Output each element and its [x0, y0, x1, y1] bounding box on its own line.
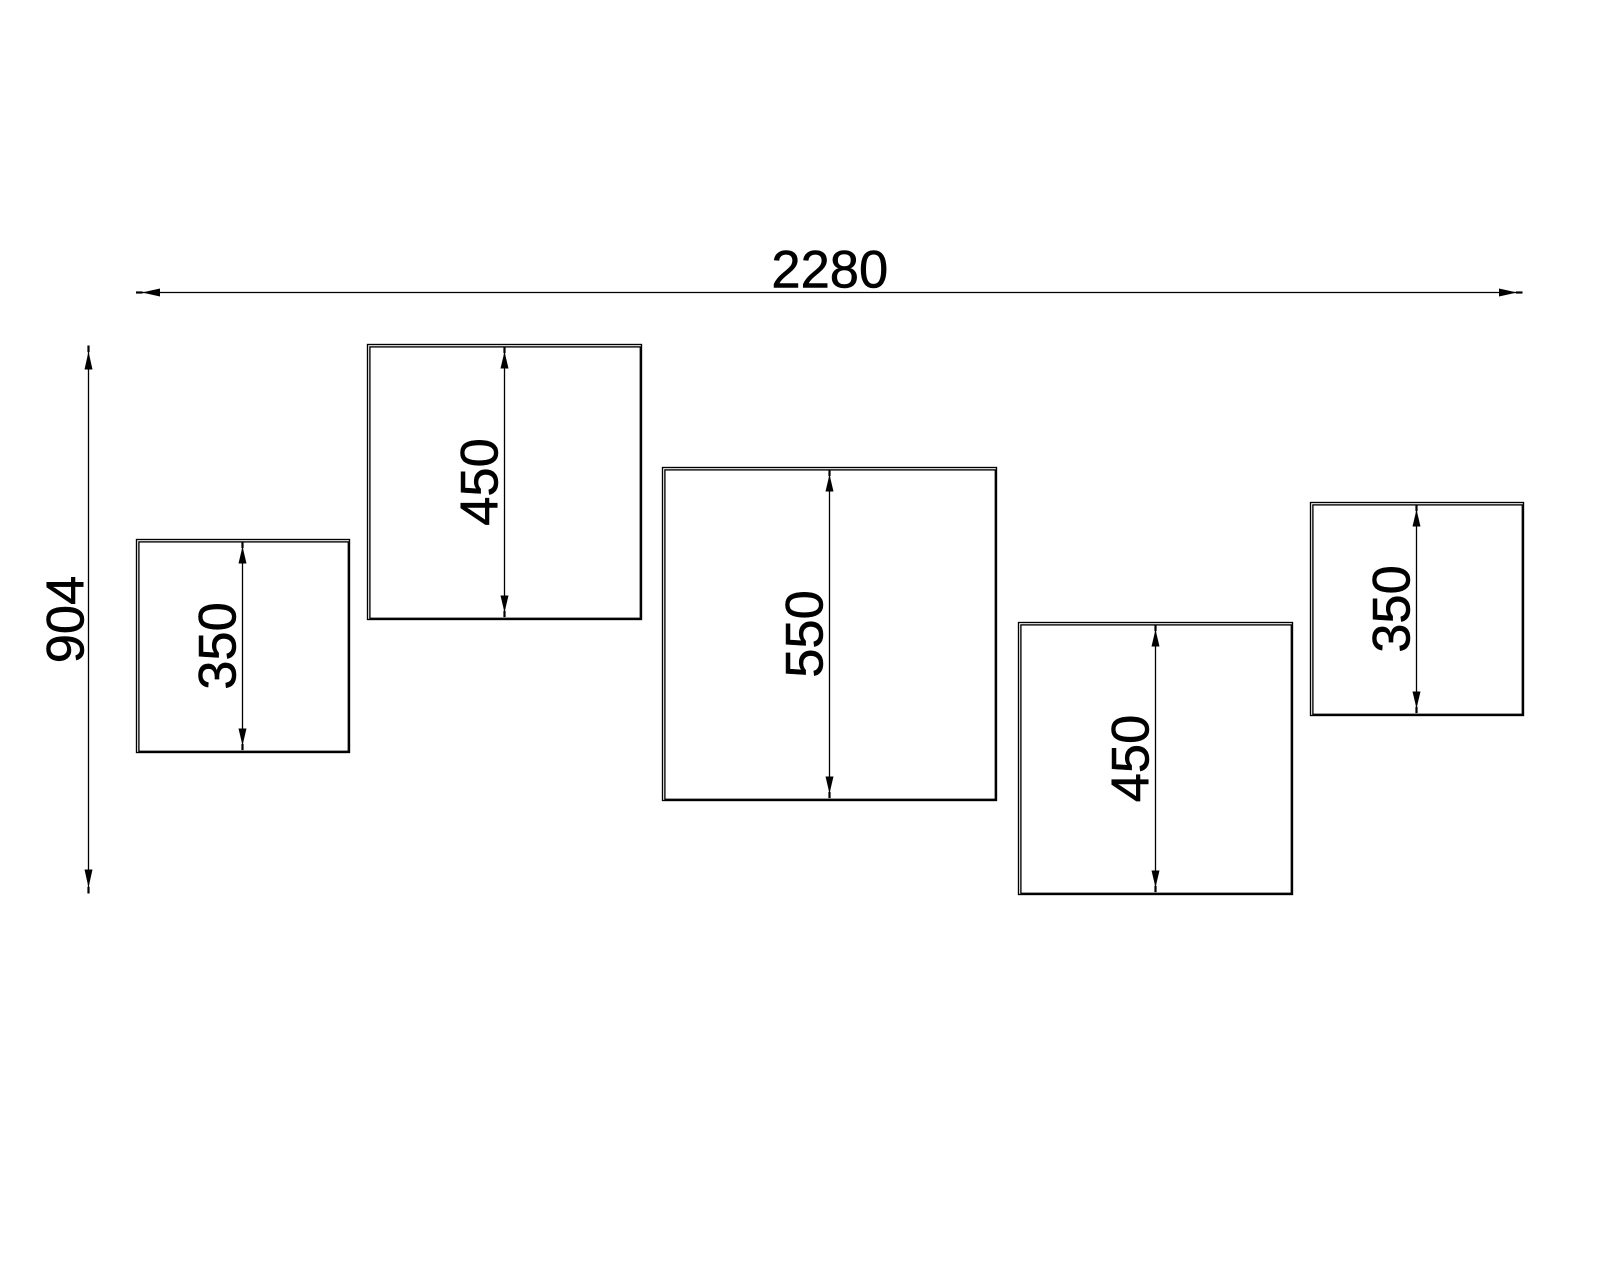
- svg-text:350: 350: [1363, 565, 1422, 653]
- svg-text:450: 450: [451, 438, 510, 526]
- svg-text:450: 450: [1102, 715, 1161, 803]
- svg-text:350: 350: [189, 602, 248, 690]
- svg-text:2280: 2280: [771, 241, 888, 300]
- svg-text:904: 904: [36, 576, 95, 664]
- svg-text:550: 550: [776, 590, 835, 678]
